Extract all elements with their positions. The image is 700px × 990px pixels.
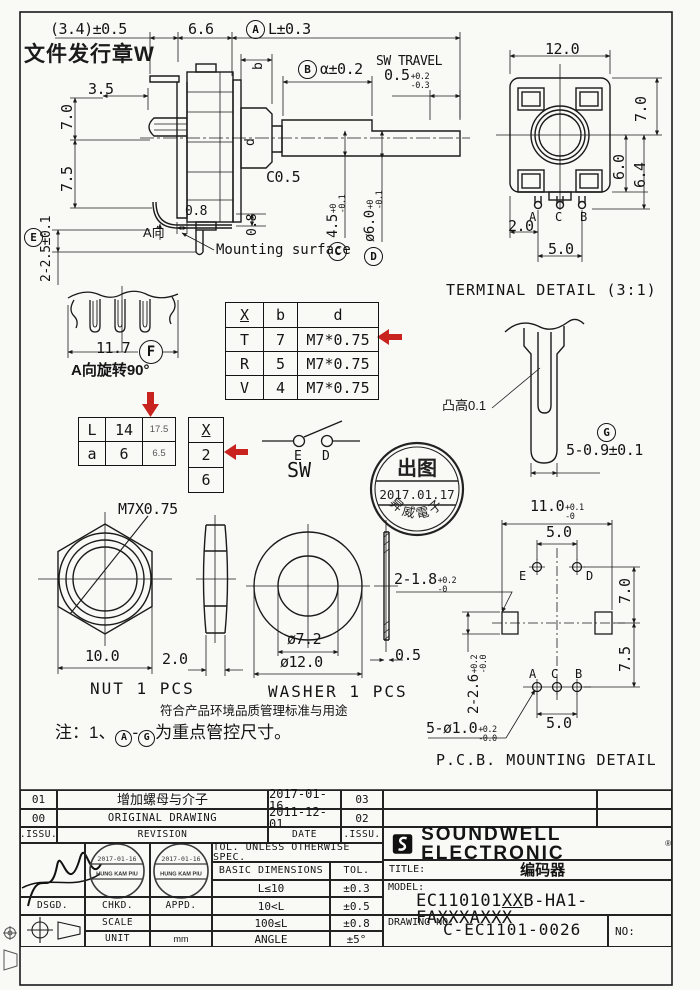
title-row: TITLE: 编码器	[383, 860, 672, 880]
switch-symbol	[262, 421, 360, 447]
dim-6-6: 6.6	[188, 22, 214, 37]
projection-cell	[20, 915, 85, 947]
label-d: d	[244, 139, 257, 146]
xbd-thread-table: X b d T 7 M7*0.75 R 5 M7*0.75 V 4 M7*0.7…	[225, 302, 379, 400]
dim-L: A L±0.3	[246, 20, 311, 39]
ref-circle-g: G	[597, 423, 616, 442]
sw-travel-value: 0.5+0.2-0.3	[384, 68, 429, 91]
pcb-hole-c: C	[551, 668, 558, 680]
tol-row-dim: L≤10	[212, 880, 330, 897]
f-view-caption: A向旋转90°	[71, 363, 150, 378]
sw-label: SW	[287, 460, 311, 480]
engineering-drawing-sheet: 出图 2017.01.17 昇威電子	[0, 0, 700, 990]
stamp-date-text: 2017.01.17	[379, 487, 454, 502]
ref-circle-f: F	[139, 340, 163, 364]
dim-7-5: 7.5	[60, 166, 75, 192]
tol-col2: TOL.	[330, 862, 383, 880]
table-row: a 6 6.5	[79, 442, 176, 466]
rev1-extra2	[597, 790, 672, 809]
ref-circle-a: A	[246, 20, 265, 39]
dim-0-8b: 0.8	[246, 214, 259, 236]
mounting-surface-label: Mounting surface	[216, 243, 351, 257]
rear-pin-b: B	[580, 211, 587, 223]
revhdr-date: DATE	[268, 827, 341, 843]
x-code-table: X 2 6	[188, 417, 224, 493]
title-value: 编码器	[520, 863, 565, 878]
table-row: T 7 M7*0.75	[226, 328, 379, 352]
company-name: SOUNDWELL ELECTRONIC	[421, 825, 657, 863]
pcb-dim-5-bot: 5.0	[546, 716, 572, 731]
nut-caption: NUT 1 PCS	[90, 681, 195, 697]
appd-sign-cell	[150, 843, 212, 897]
table-row: 2	[189, 443, 224, 468]
washer-caption: WASHER 1 PCS	[268, 684, 408, 700]
release-stamp: 出图 2017.01.17 昇威電子	[371, 443, 463, 535]
nut-dim-10: 10.0	[85, 649, 119, 664]
rear-dim-6-4: 6.4	[633, 162, 648, 188]
company-banner: SOUNDWELL ELECTRONIC®	[383, 827, 672, 860]
tol-row-dim: ANGLE	[212, 931, 330, 947]
dim-12-0: 12.0	[545, 42, 579, 57]
nut-thread-label: M7X0.75	[118, 502, 178, 517]
dim-3-4: (3.4)±0.5	[50, 22, 127, 37]
tol-row-val: ±0.8	[330, 915, 383, 931]
drawing-no-row: DRAWING NO: C-EC1101-0026	[383, 915, 608, 947]
pcb-hole-a: A	[529, 668, 536, 680]
revhdr-revision: REVISION	[57, 827, 268, 843]
tol-row-val: ±0.3	[330, 880, 383, 897]
washer-dims	[246, 520, 403, 678]
ref-circle-g-inline: G	[138, 730, 155, 747]
pcb-caption: P.C.B. MOUNTING DETAIL	[436, 753, 657, 768]
pcb-dim-holes: 5-ø1.0+0.2-0.0	[426, 721, 497, 744]
unit-label: UNIT	[85, 931, 150, 947]
registered-mark: ®	[665, 840, 671, 848]
appd-label: APPD.	[150, 897, 212, 915]
dim-2-2-5: 2-2.5±0.1	[40, 216, 53, 282]
terminal-dim: 5-0.9±0.1	[566, 443, 643, 458]
dsgd-sign-cell	[20, 843, 85, 897]
no-cell: NO:	[608, 915, 672, 947]
rev0-issu: 00	[20, 809, 57, 827]
pcb-dim-1-8: 2-1.8+0.2-0	[394, 572, 456, 595]
rear-dim-2-0: 2.0	[508, 219, 534, 234]
drawing-no-value: C-EC1101-0026	[443, 922, 581, 938]
tol-col1: BASIC DIMENSIONS	[212, 862, 330, 880]
nut-dim-2: 2.0	[162, 652, 188, 667]
ref-circle-d: D	[364, 247, 383, 266]
dim-6-0: ø6.0+0-0.1	[362, 191, 385, 242]
table-row: R 5 M7*0.75	[226, 352, 379, 376]
revhdr-issu2: .ISSU.	[341, 827, 383, 843]
label-b: b	[252, 63, 265, 70]
dim-3-5: 3.5	[88, 82, 114, 97]
dim-c0-5: C0.5	[266, 170, 300, 185]
dim-11-7: 11.7	[96, 341, 130, 356]
rev0-date: 2011-12-01	[268, 809, 341, 827]
rev1-issu: 01	[20, 790, 57, 809]
rev1-extra	[383, 790, 597, 809]
washer-dim-inner: ø7.2	[287, 632, 321, 647]
document-release-stamp-text: 文件发行章W	[24, 44, 155, 65]
pcb-dim-7-5: 7.5	[618, 646, 633, 672]
chkd-label: CHKD.	[85, 897, 150, 915]
tol-row-dim: 100≤L	[212, 915, 330, 931]
scale-value	[150, 915, 212, 931]
terminal-detail-title: TERMINAL DETAIL (3:1)	[446, 283, 657, 298]
rev0-issu2: 02	[341, 809, 383, 827]
dim-0-8a: 0.8	[185, 205, 207, 218]
terminal-detail-dims	[492, 368, 600, 477]
table-row: V 4 M7*0.75	[226, 376, 379, 400]
washer-dim-thick: 0.5	[395, 648, 421, 663]
pcb-dim-5-top: 5.0	[546, 525, 572, 540]
margin-marks	[3, 926, 17, 970]
pcb-dim-2-6: 2-2.6+0.2-0.0	[466, 655, 489, 714]
environment-note: 符合产品环境品质管理标准与用途	[160, 705, 348, 718]
rev1-desc: 增加螺母与介子	[57, 790, 268, 809]
washer-dim-outer: ø12.0	[280, 655, 323, 670]
pcb-dim-11: 11.0+0.1-0	[530, 499, 584, 522]
tol-row-val: ±5°	[330, 931, 383, 947]
pcb-hole-b: B	[575, 668, 582, 680]
rear-pin-c: C	[555, 211, 562, 223]
table-header-row: X b d	[226, 303, 379, 328]
table-row: X	[189, 418, 224, 443]
model-row: MODEL: EC110101XXB-HA1-FAXXXAXXX	[383, 880, 672, 915]
soundwell-logo-icon	[392, 831, 413, 857]
rev1-issu2: 03	[341, 790, 383, 809]
table-row: 6	[189, 468, 224, 493]
la-dimension-table: L 14 17.5 a 6 6.5	[78, 417, 176, 466]
rear-dim-5-0: 5.0	[548, 242, 574, 257]
ref-circle-b: B	[298, 60, 317, 79]
a-direction-label: A向	[143, 226, 165, 239]
scale-label: SCALE	[85, 915, 150, 931]
tol-row-val: ±0.5	[330, 897, 383, 915]
sw-terminal-d: D	[322, 450, 330, 463]
side-view-details	[140, 72, 470, 222]
rev0-desc: ORIGINAL DRAWING	[57, 809, 268, 827]
revhdr-issu: .ISSU.	[20, 827, 57, 843]
pcb-hole-e: E	[519, 570, 526, 582]
ref-circle-a-inline: A	[115, 730, 132, 747]
rear-dim-7-0: 7.0	[634, 96, 649, 122]
pcb-hole-d: D	[586, 570, 593, 582]
dim-alpha: B α±0.2	[298, 60, 363, 79]
f-view-outline	[68, 291, 178, 332]
stamp-top-text: 出图	[397, 457, 437, 480]
dim-7-0: 7.0	[60, 104, 75, 130]
unit-value: mm	[150, 931, 212, 947]
rear-dim-6-0: 6.0	[612, 154, 627, 180]
table-row: L 14 17.5	[79, 418, 176, 442]
chkd-sign-cell	[85, 843, 150, 897]
tol-row-dim: 10<L	[212, 897, 330, 915]
bump-height-label: 凸高0.1	[442, 399, 486, 412]
dim-4-5: 4.5+0-0.1	[325, 195, 348, 238]
dsgd-label: DSGD.	[20, 897, 85, 915]
control-dimension-note: 注：1、A-G为重点管控尺寸。	[55, 724, 291, 747]
side-view-outline	[149, 64, 460, 255]
pcb-dim-7: 7.0	[618, 578, 633, 604]
tol-title: TOL. UNLESS OTHERWISE SPEC.	[212, 843, 383, 862]
